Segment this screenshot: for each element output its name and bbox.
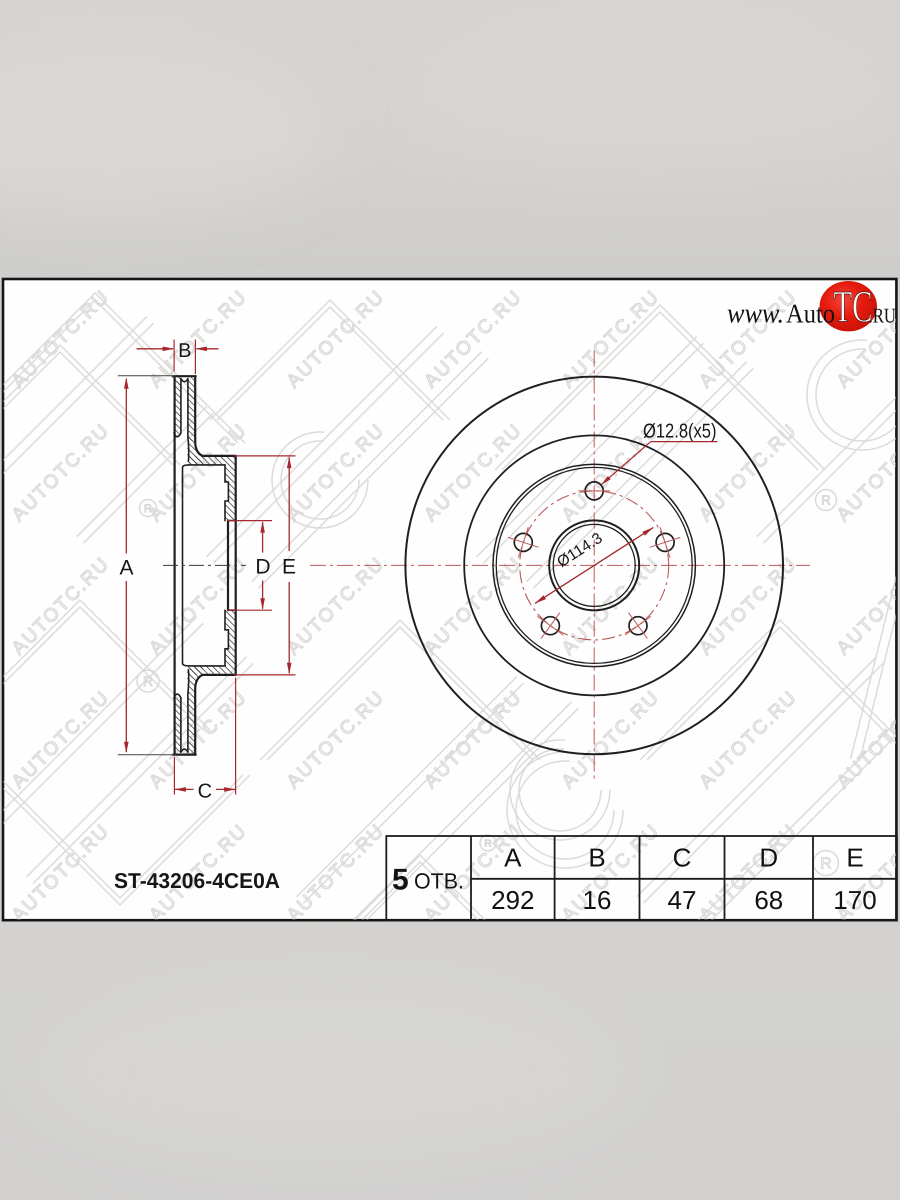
- svg-text:B: B: [178, 340, 191, 362]
- svg-text:TC: TC: [834, 282, 873, 332]
- svg-text:A: A: [119, 557, 133, 580]
- svg-text:C: C: [198, 781, 212, 803]
- svg-text:E: E: [846, 843, 863, 873]
- svg-text:170: 170: [833, 885, 876, 915]
- svg-text:B: B: [588, 843, 605, 873]
- svg-text:A: A: [504, 843, 522, 873]
- svg-text:R: R: [821, 493, 830, 508]
- svg-text:R: R: [820, 856, 832, 873]
- svg-text:Auto: Auto: [786, 299, 835, 329]
- svg-text:www.: www.: [727, 299, 784, 330]
- svg-text:5: 5: [392, 864, 409, 897]
- svg-text:ST-43206-4CE0A: ST-43206-4CE0A: [114, 869, 280, 893]
- svg-text:47: 47: [668, 885, 697, 915]
- svg-text:16: 16: [583, 885, 612, 915]
- svg-text:D: D: [255, 556, 270, 579]
- svg-text:68: 68: [754, 885, 783, 915]
- svg-text:ОТВ.: ОТВ.: [414, 869, 464, 894]
- svg-text:R: R: [143, 673, 153, 689]
- svg-text:.RU: .RU: [869, 304, 897, 328]
- svg-text:Ø12.8(x5): Ø12.8(x5): [643, 420, 717, 442]
- svg-text:E: E: [282, 556, 296, 579]
- svg-text:C: C: [673, 843, 692, 873]
- svg-text:D: D: [759, 843, 778, 873]
- svg-text:292: 292: [491, 885, 534, 915]
